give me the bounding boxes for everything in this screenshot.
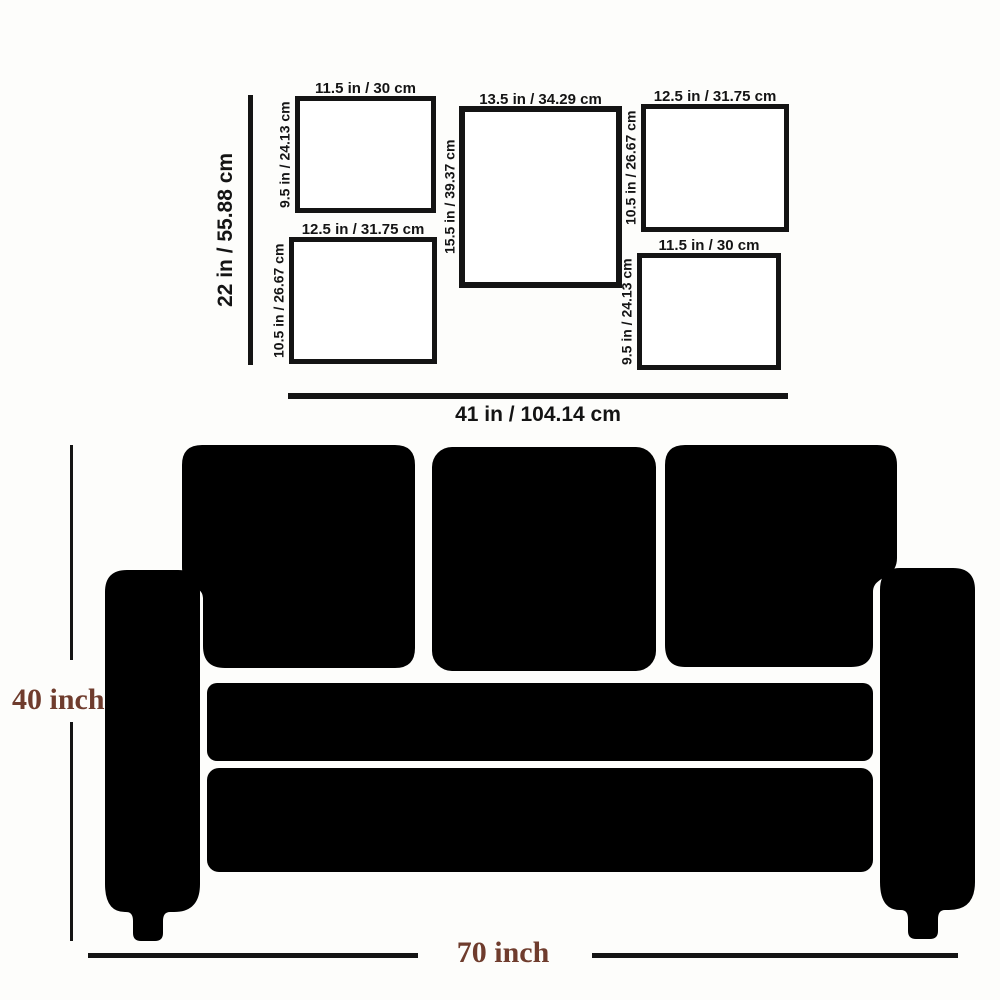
sofa-armrest-left: [105, 570, 200, 941]
sofa-gallery-wall-dimension-diagram: 22 in / 55.88 cm 11.5 in / 30 cm 9.5 in …: [0, 0, 1000, 1000]
sofa-height-label: 40 inch: [12, 683, 104, 717]
sofa-seat-rail-top: [207, 683, 873, 761]
sofa-width-dimension-line-right: [592, 953, 958, 958]
sofa-back-cushion-left: [182, 445, 415, 668]
sofa-armrest-right: [880, 568, 975, 939]
sofa-height-dimension-line-bottom: [70, 722, 73, 941]
sofa-back-cushion-right: [665, 445, 897, 667]
sofa-width-dimension-line-left: [88, 953, 418, 958]
sofa-width-label: 70 inch: [430, 936, 576, 970]
sofa-silhouette: [0, 0, 1000, 1000]
sofa-seat-rail-bottom: [207, 768, 873, 872]
sofa-back-cushion-middle: [432, 447, 656, 671]
sofa-height-dimension-line-top: [70, 445, 73, 660]
